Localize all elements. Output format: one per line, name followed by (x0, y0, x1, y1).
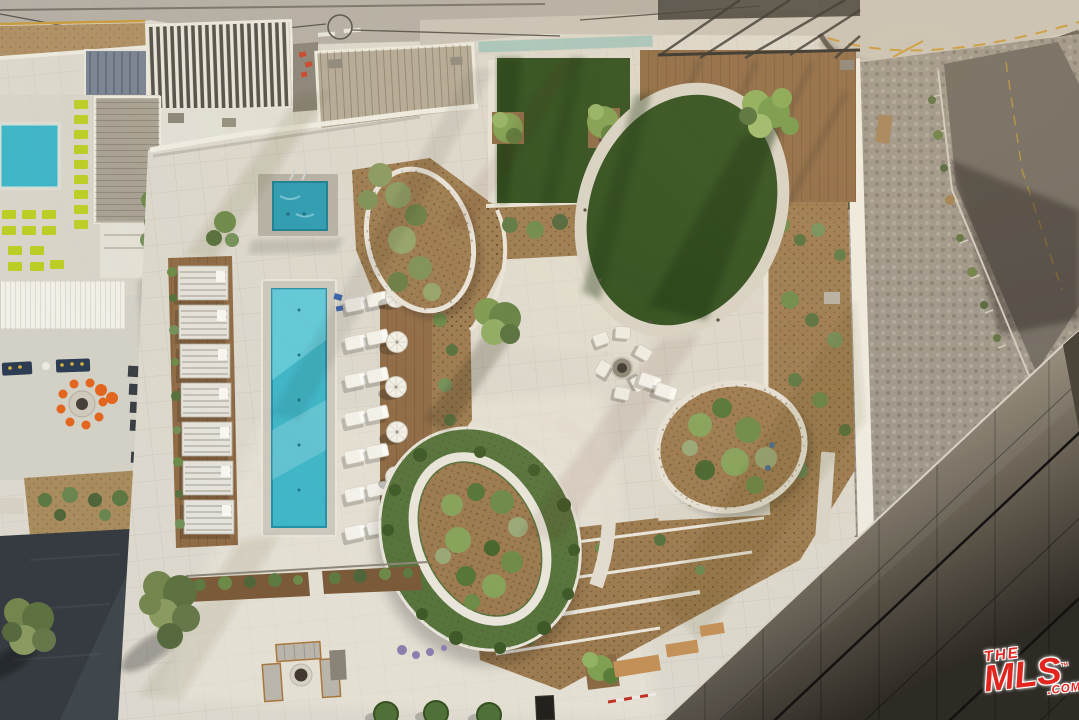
aerial-photo: THE MLS™ .COM (0, 0, 1079, 720)
mls-watermark: THE MLS™ .COM (980, 638, 1079, 704)
aerial-photo-canvas (0, 0, 1079, 720)
trademark-symbol: ™ (1060, 661, 1069, 671)
